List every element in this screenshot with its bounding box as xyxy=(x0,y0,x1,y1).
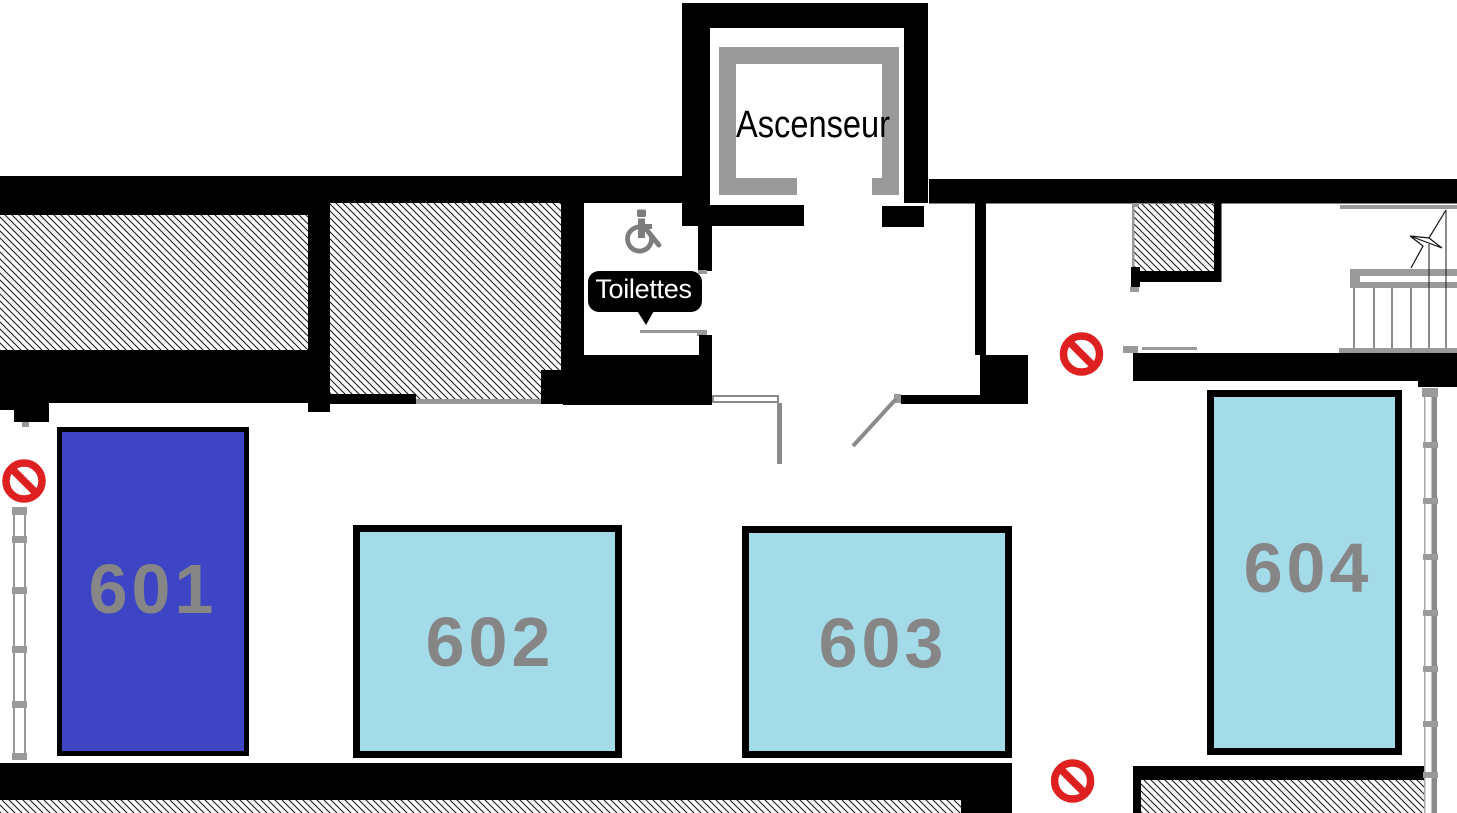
svg-text:601: 601 xyxy=(89,550,218,628)
svg-text:602: 602 xyxy=(426,603,555,681)
svg-text:Ascenseur: Ascenseur xyxy=(736,104,890,146)
svg-text:603: 603 xyxy=(819,604,948,682)
svg-text:Toilettes: Toilettes xyxy=(595,274,691,304)
svg-text:604: 604 xyxy=(1244,529,1373,607)
